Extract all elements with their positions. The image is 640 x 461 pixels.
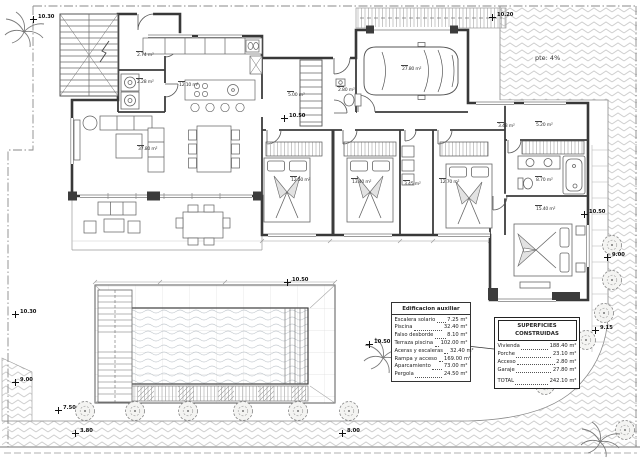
pool-terrace <box>93 280 337 403</box>
room-area-label: 15.40 m² <box>536 207 555 212</box>
access-ramp <box>356 8 506 28</box>
elevation-marker: 10.30 <box>12 311 19 318</box>
table-row: Porche23.10 m² <box>498 351 577 359</box>
room-area-label: 27.80 m² <box>402 67 421 72</box>
elevation-cross-icon <box>339 430 346 437</box>
elevation-marker: 10.50 <box>366 341 373 348</box>
elevation-cross-icon <box>284 279 291 286</box>
room-area-label: 3.48 m² <box>498 124 515 129</box>
elevation-cross-icon <box>12 379 19 386</box>
porch-furniture <box>84 202 230 245</box>
table-row: Vivienda188.40 m² <box>498 343 577 351</box>
room-area-label: 3.45 m² <box>404 182 421 187</box>
slope-label: pte: 4% <box>533 54 562 62</box>
dining-table <box>197 126 231 172</box>
built-areas-table-title: SUPERFICIES CONSTRUIDAS <box>498 320 577 341</box>
aux-table-title: Edificacion auxiliar <box>392 303 470 315</box>
room-area-label: 2.80 m² <box>338 88 355 93</box>
elevation-cross-icon <box>72 430 79 437</box>
table-row: Falso desborde8.10 m² <box>395 332 468 340</box>
table-row: Escalera solario7.25 m² <box>395 317 468 325</box>
elevation-cross-icon <box>489 14 496 21</box>
elevation-marker: 10.50 <box>581 211 588 218</box>
wardrobe <box>522 141 584 154</box>
table-row: Rampa y acceso169.00 m² <box>395 356 468 364</box>
room-area-label: 13.40 m² <box>352 180 371 185</box>
elevation-cross-icon <box>12 311 19 318</box>
wardrobe <box>266 142 322 156</box>
outdoor-table <box>183 212 223 238</box>
table-total-row: TOTAL242.10 m² <box>498 378 577 386</box>
room-area-label: 2.74 m² <box>137 53 154 58</box>
room-area-label: 8.70 m² <box>536 178 553 183</box>
room-area-label: 37.80 m² <box>138 147 157 152</box>
elevation-marker: 3.80 <box>72 430 79 437</box>
table-row: Aparcamiento73.00 m² <box>395 363 468 371</box>
room-area-label: 5.20 m² <box>536 123 553 128</box>
table-row: Piscina32.40 m² <box>395 324 468 332</box>
site-plan-drawing <box>0 0 640 461</box>
elevation-marker: 10.50 <box>284 279 291 286</box>
terrace-stair <box>98 290 132 402</box>
room-area-label: 2.28 m² <box>137 80 154 85</box>
table-row: Pergola24.50 m² <box>395 371 468 379</box>
elevation-marker: 7.50 <box>55 407 62 414</box>
elevation-cross-icon <box>592 327 599 334</box>
table-row: Terraza piscina102.00 m² <box>395 340 468 348</box>
elevation-cross-icon <box>30 16 37 23</box>
elevation-marker: 10.20 <box>489 14 496 21</box>
room-area-label: 12.70 m² <box>440 180 459 185</box>
table-row: Acceso2.80 m² <box>498 359 577 367</box>
elevation-cross-icon <box>281 115 288 122</box>
elevation-cross-icon <box>604 254 611 261</box>
wardrobe <box>344 142 396 156</box>
exterior-stair <box>60 14 118 96</box>
room-area-label: 5.00 m² <box>288 93 305 98</box>
floor-plan-sheet: pte: 4% 10.30 10.20 10.50 10.50 10.50 9.… <box>0 0 640 461</box>
aux-areas-table: Edificacion auxiliar Escalera solario7.2… <box>391 302 471 382</box>
table-row: Garaje27.80 m² <box>498 367 577 375</box>
room-area-label: 12.50 m² <box>291 178 310 183</box>
built-areas-table: SUPERFICIES CONSTRUIDAS Vivienda188.40 m… <box>494 317 580 389</box>
elevation-cross-icon <box>55 407 62 414</box>
elevation-marker: 8.00 <box>339 430 346 437</box>
table-row: Aceras y escaleras32.40 m² <box>395 348 468 356</box>
elevation-marker: 9.00 <box>12 379 19 386</box>
elevation-marker: 9.15 <box>592 327 599 334</box>
elevation-marker: 9.00 <box>604 254 611 261</box>
elevation-marker: 10.30 <box>30 16 37 23</box>
elevation-marker: 10.50 <box>281 115 288 122</box>
elevation-cross-icon <box>366 341 373 348</box>
wardrobe <box>440 142 488 156</box>
elevation-cross-icon <box>581 211 588 218</box>
pool <box>118 308 308 384</box>
room-area-label: 12.10 m² <box>179 83 198 88</box>
